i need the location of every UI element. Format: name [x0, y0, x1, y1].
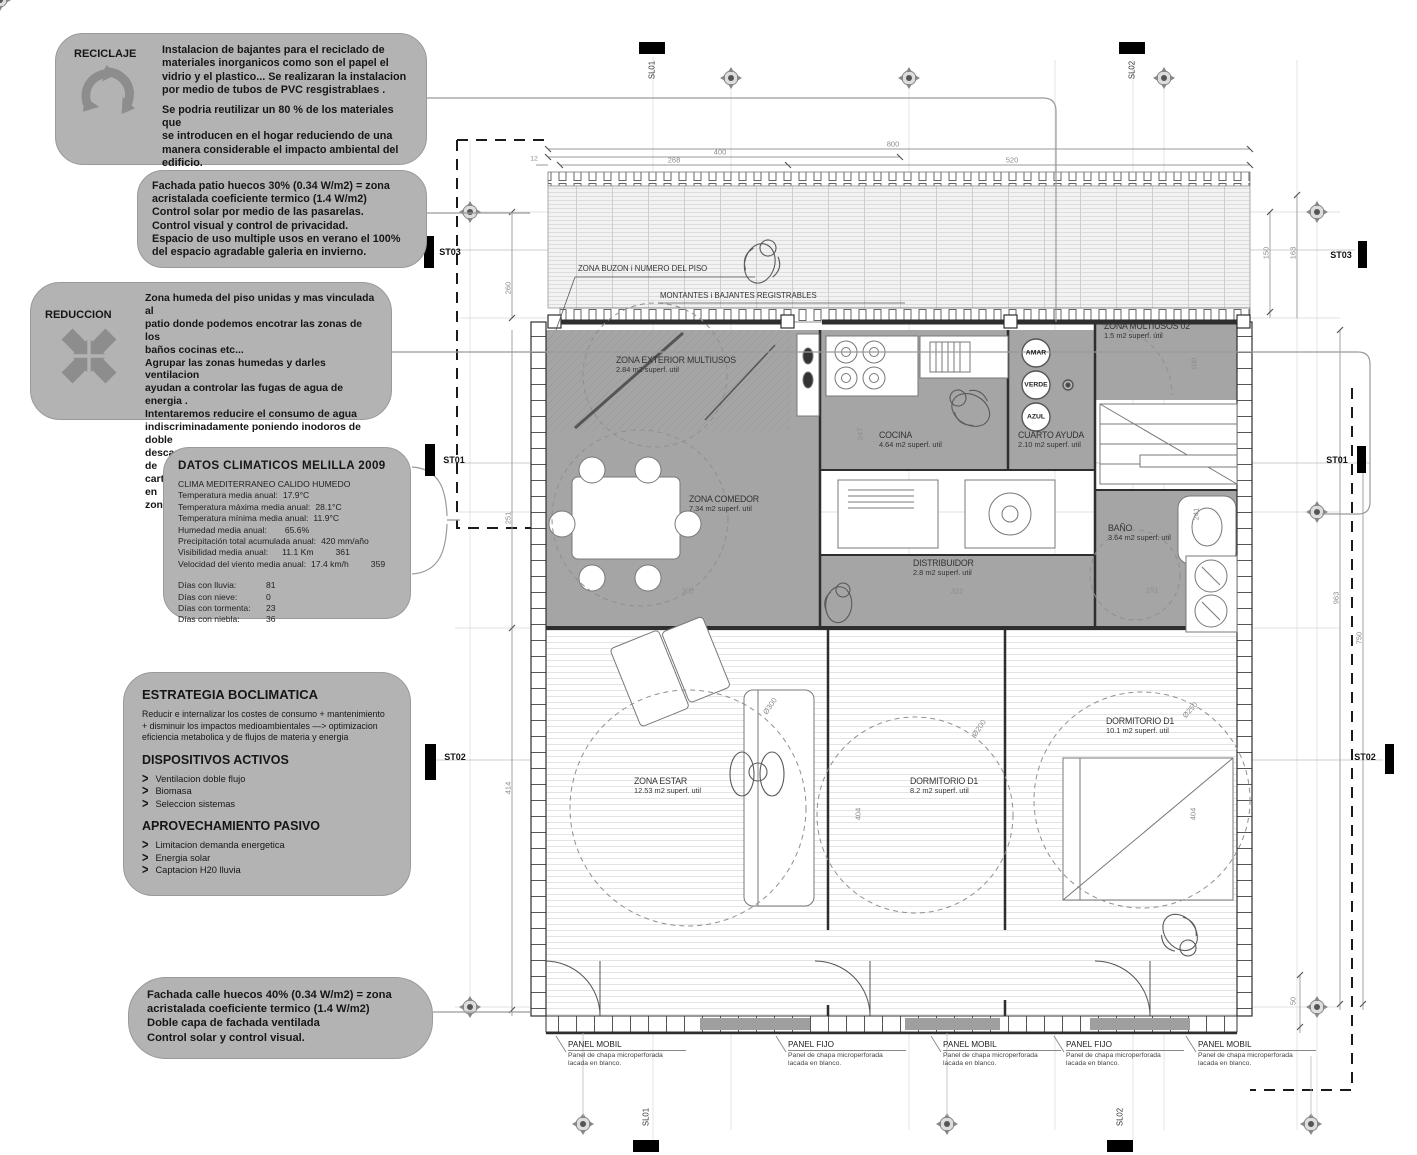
- panel-label-mobil-3: PANEL MOBIL Panel de chapa microperforad…: [1198, 1040, 1316, 1069]
- datos-title: DATOS CLIMATICOS MELILLA 2009: [178, 459, 396, 472]
- room-label-cocina: COCINA4.64 m2 superf. util: [879, 431, 942, 449]
- dim-322: 322: [951, 587, 964, 596]
- marker-sl02-top: SL02: [1128, 61, 1137, 79]
- room-label-dormitorio-d1-2: DORMITORIO D110.1 m2 superf. util: [1106, 717, 1174, 735]
- chevron-icon: >: [142, 796, 148, 811]
- climate-days-row: Días con nieve:0: [178, 592, 396, 603]
- reduccion-title: REDUCCION: [45, 309, 145, 321]
- dim-247: 247: [856, 428, 865, 441]
- street-facade: [546, 1016, 1237, 1033]
- riser-label-azul: AZUL: [1027, 414, 1045, 421]
- fachada-patio-text: Fachada patio huecos 30% (0.34 W/m2) = z…: [152, 180, 412, 259]
- marker-sl01-top: SL01: [648, 61, 657, 79]
- dim-800: 800: [887, 140, 900, 149]
- compress-arrows-icon: [55, 323, 123, 389]
- pasivo-item: >Limitacion demanda energetica: [142, 839, 392, 852]
- marker-st03-left: ST03: [439, 247, 461, 257]
- panel-label-mobil-1: PANEL MOBIL Panel de chapa microperforad…: [568, 1040, 686, 1069]
- dim-241: 241: [1192, 508, 1201, 521]
- estrategia-intro: Reducir e internalizar los costes de con…: [142, 709, 392, 744]
- marker-st01-left: ST01: [443, 455, 465, 465]
- aprovechamiento-title: APROVECHAMIENTO PASIVO: [142, 819, 392, 833]
- dim-50: 50: [1289, 997, 1298, 1005]
- dim-151: 151: [1146, 586, 1159, 595]
- dim-963: 963: [1332, 592, 1341, 605]
- dim-302: 302: [682, 587, 695, 596]
- dim-414: 414: [504, 782, 513, 795]
- panel-label-fijo-2: PANEL FIJO Panel de chapa microperforada…: [1066, 1040, 1184, 1069]
- activo-item: >Biomasa: [142, 785, 392, 798]
- dispositivos-title: DISPOSITIVOS ACTIVOS: [142, 753, 392, 767]
- climate-row: Humedad media anual:65.6%: [178, 525, 396, 536]
- climate-row: Temperatura máxima media anual:28.1°C: [178, 502, 396, 513]
- marker-st01-right: ST01: [1326, 455, 1348, 465]
- annotation-montantes: MONTANTES i BAJANTES REGISTRABLES: [660, 291, 817, 300]
- callout-fachada-calle: Fachada calle huecos 40% (0.34 W/m2) = z…: [128, 977, 433, 1059]
- room-label-zona-estar: ZONA ESTAR12.53 m2 superf. util: [634, 777, 701, 795]
- climate-days-row: Días con lluvia:81: [178, 580, 396, 591]
- dim-750: 750: [1355, 632, 1364, 645]
- activo-item: >Ventilacion doble flujo: [142, 773, 392, 786]
- callout-reciclaje: RECICLAJE Instalacion de bajantes para e…: [55, 33, 427, 165]
- climate-row: Temperatura media anual:17.9°C: [178, 490, 396, 501]
- architectural-plan-sheet: { "colors":{"callout_bg":"#b3b3b3","call…: [0, 0, 1417, 1155]
- dim-150: 150: [1262, 247, 1271, 260]
- room-label-zona-comedor: ZONA COMEDOR7.34 m2 superf. util: [689, 495, 759, 513]
- dim-251: 251: [504, 512, 513, 525]
- pasivo-item: >Captacion H20 lluvia: [142, 864, 392, 877]
- dim-404-a: 404: [854, 808, 863, 821]
- reduccion-text: Zona humeda del piso unidas y mas vincul…: [145, 293, 379, 409]
- marker-st02-right: ST02: [1354, 752, 1376, 762]
- riser-label-amar: AMAR: [1026, 350, 1046, 357]
- room-label-bano: BAÑO3.64 m2 superf. util: [1108, 524, 1171, 542]
- datos-clima: CLIMA MEDITERRANEO CALIDO HUMEDO: [178, 479, 396, 490]
- activo-item: >Seleccion sistemas: [142, 798, 392, 811]
- reciclaje-title: RECICLAJE: [74, 48, 162, 60]
- recycle-icon: [76, 64, 140, 126]
- room-label-cuarto-ayuda: CUARTO AYUDA2.10 m2 superf. util: [1018, 431, 1084, 449]
- callout-reduccion: REDUCCION Zona humeda del piso unidas y …: [30, 282, 392, 420]
- dim-163: 163: [1289, 247, 1298, 260]
- callout-estrategia: ESTRATEGIA BOCLIMATICA Reducir e interna…: [123, 672, 411, 896]
- estrategia-title: ESTRATEGIA BOCLIMATICA: [142, 687, 392, 702]
- climate-row: Visibilidad media anual:11.1 Km361: [178, 547, 396, 558]
- panel-label-mobil-2: PANEL MOBIL Panel de chapa microperforad…: [943, 1040, 1061, 1069]
- dim-400: 400: [714, 148, 727, 157]
- marker-st02-left: ST02: [444, 752, 466, 762]
- climate-days-row: Días con niebla:36: [178, 614, 396, 625]
- dim-520: 520: [1006, 156, 1019, 165]
- marker-sl01-bottom: SL01: [642, 1108, 651, 1126]
- room-label-dormitorio-d1: DORMITORIO D18.2 m2 superf. util: [910, 777, 978, 795]
- marker-st03-right: ST03: [1330, 250, 1352, 260]
- dim-100: 100: [1190, 358, 1199, 371]
- room-label-distribuidor: DISTRIBUIDOR2.8 m2 superf. util: [913, 559, 974, 577]
- chevron-icon: >: [142, 863, 148, 878]
- reciclaje-paragraph-1: Instalacion de bajantes para el reciclad…: [162, 44, 412, 98]
- climate-days-row: Días con tormenta:23: [178, 603, 396, 614]
- dim-268: 268: [668, 156, 681, 165]
- callout-fachada-patio: Fachada patio huecos 30% (0.34 W/m2) = z…: [137, 170, 427, 268]
- panel-label-fijo-1: PANEL FIJO Panel de chapa microperforada…: [788, 1040, 906, 1069]
- riser-label-verde: VERDE: [1024, 382, 1047, 389]
- pasivo-item: >Energia solar: [142, 852, 392, 865]
- dim-12: 12: [530, 156, 538, 163]
- reciclaje-paragraph-2: Se podria reutilizar un 80 % de los mate…: [162, 104, 412, 171]
- marker-sl02-bottom: SL02: [1116, 1108, 1125, 1126]
- survey-targets: [0, 0, 11, 11]
- room-label-zona-exterior-multiusos: ZONA EXTERIOR MULTIUSOS2.84 m2 superf. u…: [616, 356, 736, 374]
- fachada-calle-text: Fachada calle huecos 40% (0.34 W/m2) = z…: [147, 988, 414, 1045]
- climate-row: Temperatura mínima media anual:11.9°C: [178, 513, 396, 524]
- annotation-buzon: ZONA BUZON i NUMERO DEL PISO: [578, 264, 707, 273]
- callout-datos-climaticos: DATOS CLIMATICOS MELILLA 2009 CLIMA MEDI…: [163, 447, 411, 619]
- climate-row: Velocidad del viento media anual:17.4 km…: [178, 559, 396, 570]
- room-label-zona-multiusos-02: ZONA MULTIUSOS 021.5 m2 superf. útil: [1104, 322, 1190, 340]
- climate-row: Precipitación total acumulada anual:420 …: [178, 536, 396, 547]
- dim-404-b: 404: [1189, 808, 1198, 821]
- dim-260: 260: [504, 282, 513, 295]
- gallery-band: [548, 172, 1250, 322]
